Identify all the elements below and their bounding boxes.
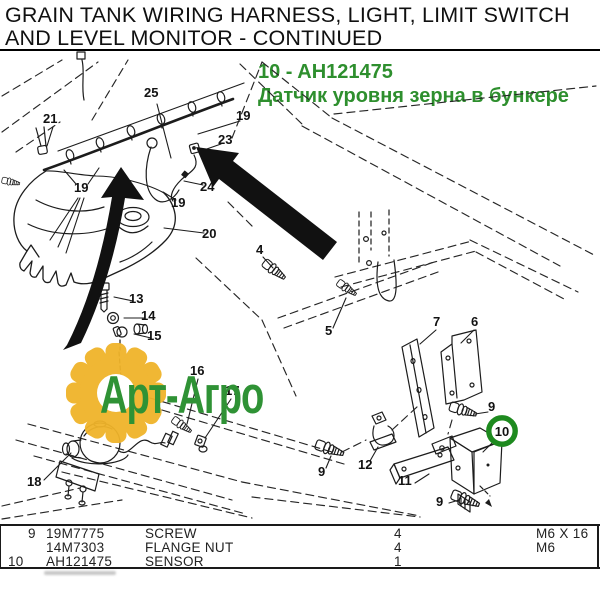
table-row-ref: 10 [8,555,24,569]
table-row-qty: 4 [394,541,402,555]
small-screw [1,176,20,187]
callout-23: 23 [218,133,232,146]
callout-6: 6 [471,315,478,328]
callout-9-upper: 9 [488,400,495,413]
table-row-qty: 4 [394,527,402,541]
table-row-part-number: 19M7775 [46,527,104,541]
bracket-6 [441,330,482,404]
clamp-15 [113,324,148,392]
screw-9-upper [448,401,478,420]
level-sensor-18 [56,421,178,505]
screw-4 [261,258,288,283]
exploded-parts-diagram: 10 [0,0,600,600]
callout-18: 18 [27,475,41,488]
callout-21: 21 [43,112,57,125]
table-right-border [597,524,599,569]
black-arrow-right [196,147,337,260]
callout-9-lower: 9 [436,495,443,508]
callout-5: 5 [325,324,332,337]
table-row-remarks: M6 [536,541,555,555]
callout-9-left: 9 [318,465,325,478]
leader-lines [44,104,493,503]
highlight-ring-label: 10 [495,424,509,439]
table-row-description: SCREW [145,527,197,541]
callout-20: 20 [202,227,216,240]
callout-25: 25 [144,86,158,99]
callout-4: 4 [256,243,263,256]
table-row-description: FLANGE NUT [145,541,234,555]
callout-11: 11 [398,474,412,487]
callout-13: 13 [129,292,143,305]
highlight-ring-10: 10 [489,418,515,444]
bolt-5 [335,278,358,298]
callout-19-top: 19 [236,109,250,122]
callout-7: 7 [433,315,440,328]
table-left-border [0,524,1,569]
callout-24: 24 [200,180,214,193]
callout-19-mid: 19 [171,196,185,209]
table-row-part-number: AH121475 [46,555,112,569]
parts-catalog-page: GRAIN TANK WIRING HARNESS, LIGHT, LIMIT … [0,0,600,600]
table-row-qty: 1 [394,555,402,569]
callout-19-left: 19 [74,181,88,194]
clipped-next-row [44,571,116,575]
connector-21-part [36,127,48,155]
callout-16: 16 [190,364,204,377]
callout-14: 14 [141,309,155,322]
clamp-12 [370,412,396,450]
washer-14 [108,313,119,324]
callout-17: 17 [225,384,239,397]
table-row-part-number: 14M7303 [46,541,104,555]
table-row-remarks: M6 X 16 [536,527,588,541]
table-row-ref: 9 [28,527,36,541]
plate-7 [402,339,434,437]
table-row-description: SENSOR [145,555,204,569]
callout-12: 12 [358,458,372,471]
callout-15: 15 [147,329,161,342]
